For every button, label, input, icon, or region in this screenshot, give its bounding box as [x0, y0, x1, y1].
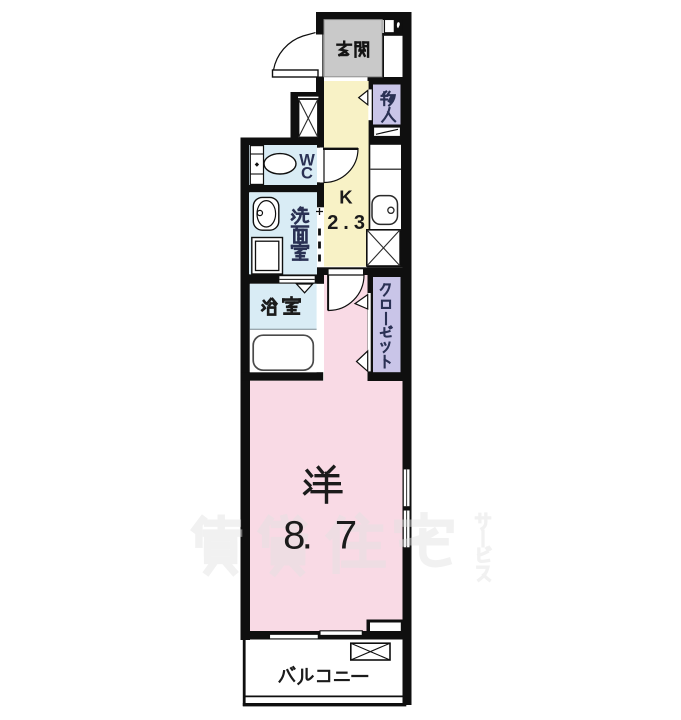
svg-text:K: K [339, 186, 353, 207]
svg-text:2.3: 2.3 [327, 212, 370, 234]
svg-text:C: C [301, 164, 313, 182]
svg-text:.: . [302, 514, 313, 558]
svg-text:7: 7 [335, 514, 357, 558]
